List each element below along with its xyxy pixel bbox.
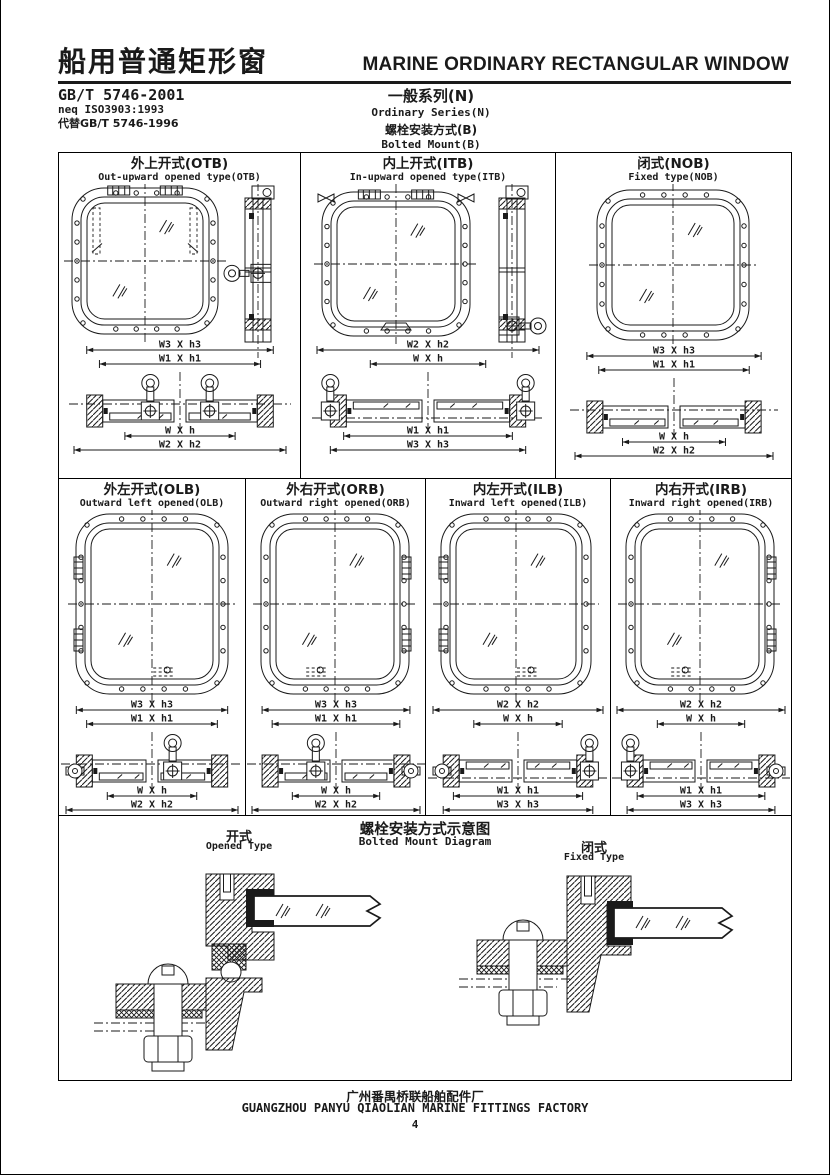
opened-type-label-en: Opened Type xyxy=(184,841,294,852)
section-view: W3 X h3W1 X h1W X hW2 X h2 xyxy=(570,346,778,461)
dim-label: W2 X h2 xyxy=(653,446,695,457)
opened-type-drawing xyxy=(94,874,380,1071)
series-name-cn: 一般系列(N) xyxy=(291,86,571,106)
section-view: W3 X h3W1 X h1W X hW2 X h2 xyxy=(247,700,425,815)
section-view: W2 X h2W X hW1 X h1W3 X h3 xyxy=(612,700,790,815)
dim-label: W1 X h1 xyxy=(158,354,200,365)
dim-label: W2 X h2 xyxy=(680,700,722,711)
dim-label: W1 X h1 xyxy=(314,714,356,725)
opened-type-section-drawing xyxy=(94,860,404,1078)
dim-label: W3 X h3 xyxy=(314,700,356,711)
dim-label: W3 X h3 xyxy=(158,340,200,351)
dim-label: W3 X h3 xyxy=(680,800,722,811)
front-view xyxy=(314,184,478,344)
front-view xyxy=(253,510,417,702)
fixed-type-drawing xyxy=(459,876,732,1025)
dim-label: W X h xyxy=(686,714,716,725)
series-block: 一般系列(N) Ordinary Series(N) 螺栓安装方式(B) Bol… xyxy=(291,86,571,151)
cell-olb: 外左开式(OLB) Outward left opened(OLB) W3 X … xyxy=(59,479,246,816)
itb-drawing: W2 X h2W X hW1 X h1W3 X h3 xyxy=(302,184,555,478)
dim-label: W X h xyxy=(136,786,166,797)
cell-otb: 外上开式(OTB) Out-upward opened type(OTB) W3… xyxy=(59,153,301,479)
fixed-type-section-drawing xyxy=(459,860,759,1060)
irb-drawing: W2 X h2W X hW1 X h1W3 X h3 xyxy=(612,510,790,815)
dim-label: W3 X h3 xyxy=(496,800,538,811)
cell-title-cn: 内右开式(IRB) xyxy=(611,482,791,498)
dim-label: W3 X h3 xyxy=(406,440,448,451)
dim-label: W1 X h1 xyxy=(496,786,538,797)
cell-title-en: Inward left opened(ILB) xyxy=(426,498,610,510)
cell-title-en: Outward right opened(ORB) xyxy=(246,498,425,510)
cell-orb: 外右开式(ORB) Outward right opened(ORB) W3 X… xyxy=(246,479,426,816)
orb-drawing: W3 X h3W1 X h1W X hW2 X h2 xyxy=(247,510,425,815)
dim-label: W X h xyxy=(164,426,194,437)
side-section-view xyxy=(224,184,274,358)
dim-label: W X h xyxy=(412,354,442,365)
section-view: W2 X h2W X hW1 X h1W3 X h3 xyxy=(312,340,544,455)
cell-title-en: In-upward opened type(ITB) xyxy=(301,172,555,184)
dim-label: W2 X h2 xyxy=(496,700,538,711)
drawing-table: 外上开式(OTB) Out-upward opened type(OTB) W3… xyxy=(58,152,792,1081)
series-name-en: Ordinary Series(N) xyxy=(291,106,571,120)
cell-title-en: Inward right opened(IRB) xyxy=(611,498,791,510)
front-view xyxy=(589,184,757,348)
olb-drawing: W3 X h3W1 X h1W X hW2 X h2 xyxy=(60,510,245,815)
dim-label: W2 X h2 xyxy=(158,440,200,451)
dim-label: W X h xyxy=(502,714,532,725)
diagram-title-en: Bolted Mount Diagram xyxy=(59,835,791,848)
dim-label: W2 X h2 xyxy=(130,800,172,811)
header-rule xyxy=(58,81,791,84)
front-view xyxy=(68,510,236,702)
dim-label: W3 X h3 xyxy=(130,700,172,711)
cell-title-cn: 闭式(NOB) xyxy=(556,156,791,172)
section-view: W3 X h3W1 X h1W X hW2 X h2 xyxy=(61,700,243,815)
front-view xyxy=(433,510,599,702)
dim-label: W X h xyxy=(320,786,350,797)
front-view xyxy=(64,184,226,342)
mount-type-en: Bolted Mount(B) xyxy=(291,138,571,151)
cell-title-en: Out-upward opened type(OTB) xyxy=(59,172,300,184)
factory-name-en: GUANGZHOU PANYU QIAOLIAN MARINE FITTINGS… xyxy=(1,1101,829,1115)
standard-number: GB/T 5746-2001 xyxy=(58,87,184,103)
standard-replaces: 代替GB/T 5746-1996 xyxy=(58,115,179,131)
section-view: W2 X h2W X hW1 X h1W3 X h3 xyxy=(428,700,608,815)
front-view xyxy=(618,510,782,702)
dim-label: W2 X h2 xyxy=(314,800,356,811)
dim-label: W1 X h1 xyxy=(653,360,695,371)
cell-title-cn: 外右开式(ORB) xyxy=(246,482,425,498)
page-title-cn: 船用普通矩形窗 xyxy=(58,40,268,80)
cell-title-en: Fixed type(NOB) xyxy=(556,172,791,184)
ilb-drawing: W2 X h2W X hW1 X h1W3 X h3 xyxy=(427,510,610,815)
document-page: 船用普通矩形窗 MARINE ORDINARY RECTANGULAR WIND… xyxy=(0,0,830,1175)
otb-drawing: W3 X h3W1 X h1W X hW2 X h2 xyxy=(60,184,300,478)
dim-label: W2 X h2 xyxy=(406,340,448,351)
cell-mount-diagram: 螺栓安装方式示意图 Bolted Mount Diagram 开式 Opened… xyxy=(59,816,791,1082)
cell-ilb: 内左开式(ILB) Inward left opened(ILB) W2 X h… xyxy=(426,479,611,816)
cell-nob: 闭式(NOB) Fixed type(NOB) W3 X h3W1 X h1W … xyxy=(556,153,791,479)
cell-title-en: Outward left opened(OLB) xyxy=(59,498,245,510)
dim-label: W3 X h3 xyxy=(653,346,695,357)
dim-label: W X h xyxy=(659,432,689,443)
cell-irb: 内右开式(IRB) Inward right opened(IRB) W2 X … xyxy=(611,479,791,816)
cell-title-cn: 内上开式(ITB) xyxy=(301,156,555,172)
nob-drawing: W3 X h3W1 X h1W X hW2 X h2 xyxy=(557,184,790,478)
dim-label: W1 X h1 xyxy=(406,426,448,437)
side-section-view xyxy=(499,184,546,358)
dim-label: W1 X h1 xyxy=(680,786,722,797)
cell-itb: 内上开式(ITB) In-upward opened type(ITB) W2 … xyxy=(301,153,556,479)
cell-title-cn: 外左开式(OLB) xyxy=(59,482,245,498)
page-title-en: MARINE ORDINARY RECTANGULAR WINDOW xyxy=(362,54,789,76)
cell-title-cn: 外上开式(OTB) xyxy=(59,156,300,172)
dim-label: W1 X h1 xyxy=(130,714,172,725)
mount-type-cn: 螺栓安装方式(B) xyxy=(291,122,571,138)
page-number: 4 xyxy=(1,1118,829,1131)
cell-title-cn: 内左开式(ILB) xyxy=(426,482,610,498)
